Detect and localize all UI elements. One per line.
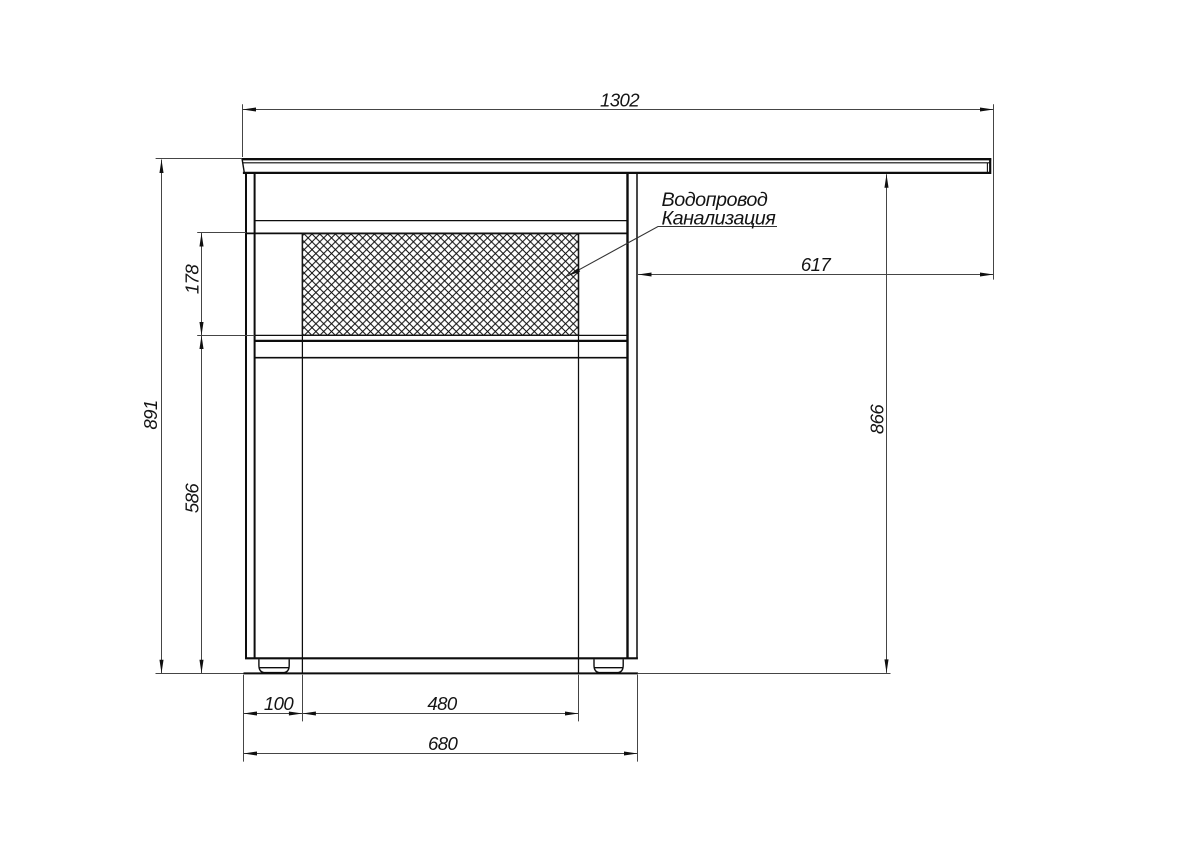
svg-text:178: 178 xyxy=(182,264,203,294)
svg-text:617: 617 xyxy=(801,254,831,275)
svg-text:480: 480 xyxy=(427,693,457,714)
svg-text:Канализация: Канализация xyxy=(662,208,777,230)
svg-text:680: 680 xyxy=(428,733,458,754)
svg-text:586: 586 xyxy=(182,483,203,513)
svg-text:891: 891 xyxy=(140,400,161,429)
svg-text:866: 866 xyxy=(867,404,888,434)
svg-text:100: 100 xyxy=(264,693,294,714)
svg-text:1302: 1302 xyxy=(600,90,640,111)
